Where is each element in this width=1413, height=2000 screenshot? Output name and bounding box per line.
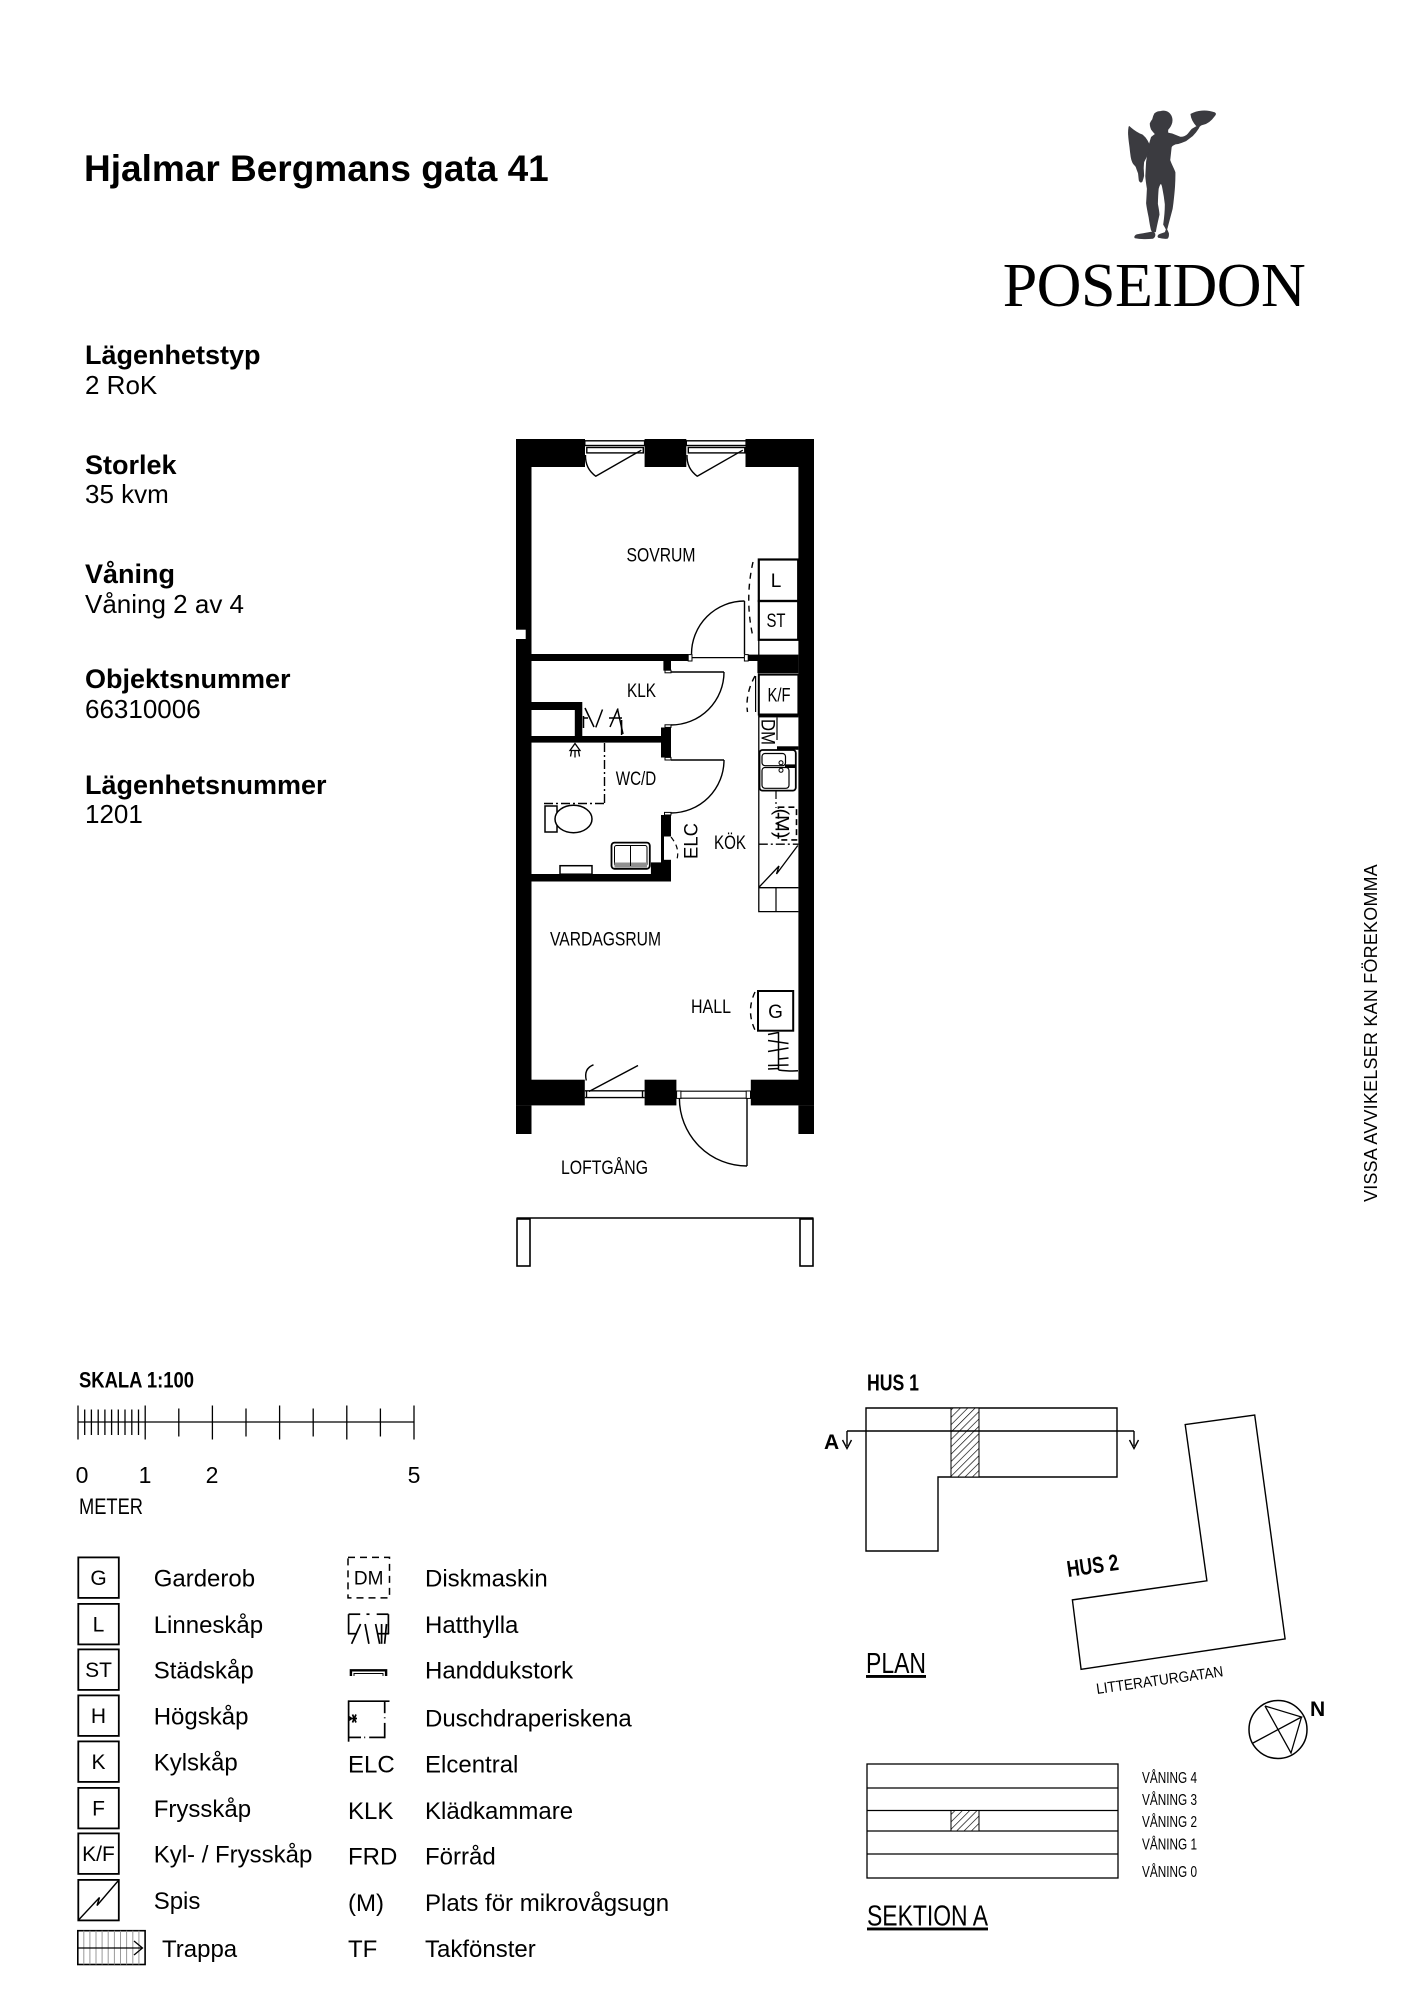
svg-text:SOVRUM: SOVRUM <box>627 546 696 567</box>
svg-text:Takfönster: Takfönster <box>425 1936 536 1963</box>
svg-text:LITTERATURGATAN: LITTERATURGATAN <box>1095 1663 1224 1698</box>
svg-text:LOFTGÅNG: LOFTGÅNG <box>561 1158 648 1179</box>
svg-text:Frysskåp: Frysskåp <box>154 1796 251 1823</box>
svg-text:VÅNING 3: VÅNING 3 <box>1142 1790 1197 1809</box>
svg-text:L: L <box>93 1614 105 1637</box>
svg-text:A: A <box>824 1431 839 1454</box>
svg-text:KÖK: KÖK <box>714 833 746 854</box>
svg-text:Elcentral: Elcentral <box>425 1751 518 1778</box>
svg-text:Kyl- / Frysskåp: Kyl- / Frysskåp <box>154 1842 313 1869</box>
svg-text:L: L <box>771 571 782 592</box>
svg-text:Objektsnummer: Objektsnummer <box>85 664 291 694</box>
svg-text:FRD: FRD <box>348 1843 397 1870</box>
svg-text:Högskåp: Högskåp <box>154 1704 249 1731</box>
svg-text:F: F <box>92 1798 105 1821</box>
svg-text:Hjalmar Bergmans gata 41: Hjalmar Bergmans gata 41 <box>84 148 549 189</box>
svg-text:1201: 1201 <box>85 799 143 829</box>
svg-text:Lägenhetstyp: Lägenhetstyp <box>85 340 261 370</box>
svg-text:VÅNING 4: VÅNING 4 <box>1142 1768 1197 1787</box>
svg-text:ST: ST <box>767 611 786 632</box>
svg-text:Städskåp: Städskåp <box>154 1658 254 1685</box>
svg-text:ST: ST <box>85 1659 112 1682</box>
svg-text:SKALA 1:100: SKALA 1:100 <box>79 1368 194 1393</box>
svg-text:K/F: K/F <box>768 686 791 707</box>
svg-text:DM: DM <box>757 719 778 745</box>
svg-text:G: G <box>768 1002 783 1023</box>
svg-text:2 RoK: 2 RoK <box>85 370 158 400</box>
svg-text:HALL: HALL <box>691 997 731 1018</box>
svg-text:Diskmaskin: Diskmaskin <box>425 1566 548 1593</box>
svg-text:Lägenhetsnummer: Lägenhetsnummer <box>85 770 327 800</box>
svg-text:POSEIDON: POSEIDON <box>1003 252 1306 320</box>
svg-text:Duschdraperiskena: Duschdraperiskena <box>425 1706 632 1733</box>
svg-text:Storlek: Storlek <box>85 450 178 480</box>
svg-text:Våning 2 av 4: Våning 2 av 4 <box>85 589 244 619</box>
svg-text:H: H <box>91 1705 106 1728</box>
svg-text:35 kvm: 35 kvm <box>85 479 169 509</box>
svg-text:K/F: K/F <box>82 1843 115 1866</box>
svg-text:Trappa: Trappa <box>162 1936 238 1963</box>
svg-text:Spis: Spis <box>154 1888 201 1915</box>
svg-text:Linneskåp: Linneskåp <box>154 1612 263 1639</box>
svg-text:66310006: 66310006 <box>85 694 201 724</box>
svg-text:Våning: Våning <box>85 559 175 589</box>
svg-text:VÅNING 1: VÅNING 1 <box>1142 1835 1197 1854</box>
svg-text:ELC: ELC <box>348 1751 395 1778</box>
svg-text:Handdukstork: Handdukstork <box>425 1658 574 1685</box>
svg-text:WC/D: WC/D <box>616 769 657 790</box>
svg-text:VÅNING 0: VÅNING 0 <box>1142 1862 1197 1881</box>
svg-text:2: 2 <box>206 1462 219 1488</box>
svg-text:1: 1 <box>139 1462 152 1488</box>
svg-text:(M): (M) <box>771 809 792 839</box>
svg-text:HUS 1: HUS 1 <box>867 1370 919 1396</box>
svg-text:Förråd: Förråd <box>425 1843 496 1870</box>
svg-text:PLAN: PLAN <box>866 1648 926 1680</box>
svg-text:KLK: KLK <box>627 681 656 702</box>
svg-text:DM: DM <box>354 1569 384 1590</box>
svg-text:(M): (M) <box>348 1890 384 1917</box>
svg-text:K: K <box>91 1751 105 1774</box>
svg-text:Plats för mikrovågsugn: Plats för mikrovågsugn <box>425 1890 669 1917</box>
svg-text:SEKTION A: SEKTION A <box>867 1901 989 1933</box>
svg-text:ELC: ELC <box>682 823 703 859</box>
svg-text:VISSA AVVIKELSER KAN FÖREKOMMA: VISSA AVVIKELSER KAN FÖREKOMMA <box>1361 864 1381 1202</box>
svg-text:METER: METER <box>79 1494 143 1519</box>
svg-text:N: N <box>1310 1698 1325 1721</box>
svg-text:TF: TF <box>348 1936 377 1963</box>
svg-text:G: G <box>90 1567 106 1590</box>
svg-text:Klädkammare: Klädkammare <box>425 1798 573 1825</box>
svg-text:HUS 2: HUS 2 <box>1065 1549 1120 1582</box>
svg-text:0: 0 <box>76 1462 89 1488</box>
svg-text:KLK: KLK <box>348 1798 393 1825</box>
svg-text:Kylskåp: Kylskåp <box>154 1750 238 1777</box>
svg-text:Garderob: Garderob <box>154 1566 255 1593</box>
svg-text:VÅNING 2: VÅNING 2 <box>1142 1812 1197 1831</box>
svg-text:Hatthylla: Hatthylla <box>425 1612 519 1639</box>
svg-text:VARDAGSRUM: VARDAGSRUM <box>550 930 661 951</box>
svg-text:5: 5 <box>408 1462 421 1488</box>
